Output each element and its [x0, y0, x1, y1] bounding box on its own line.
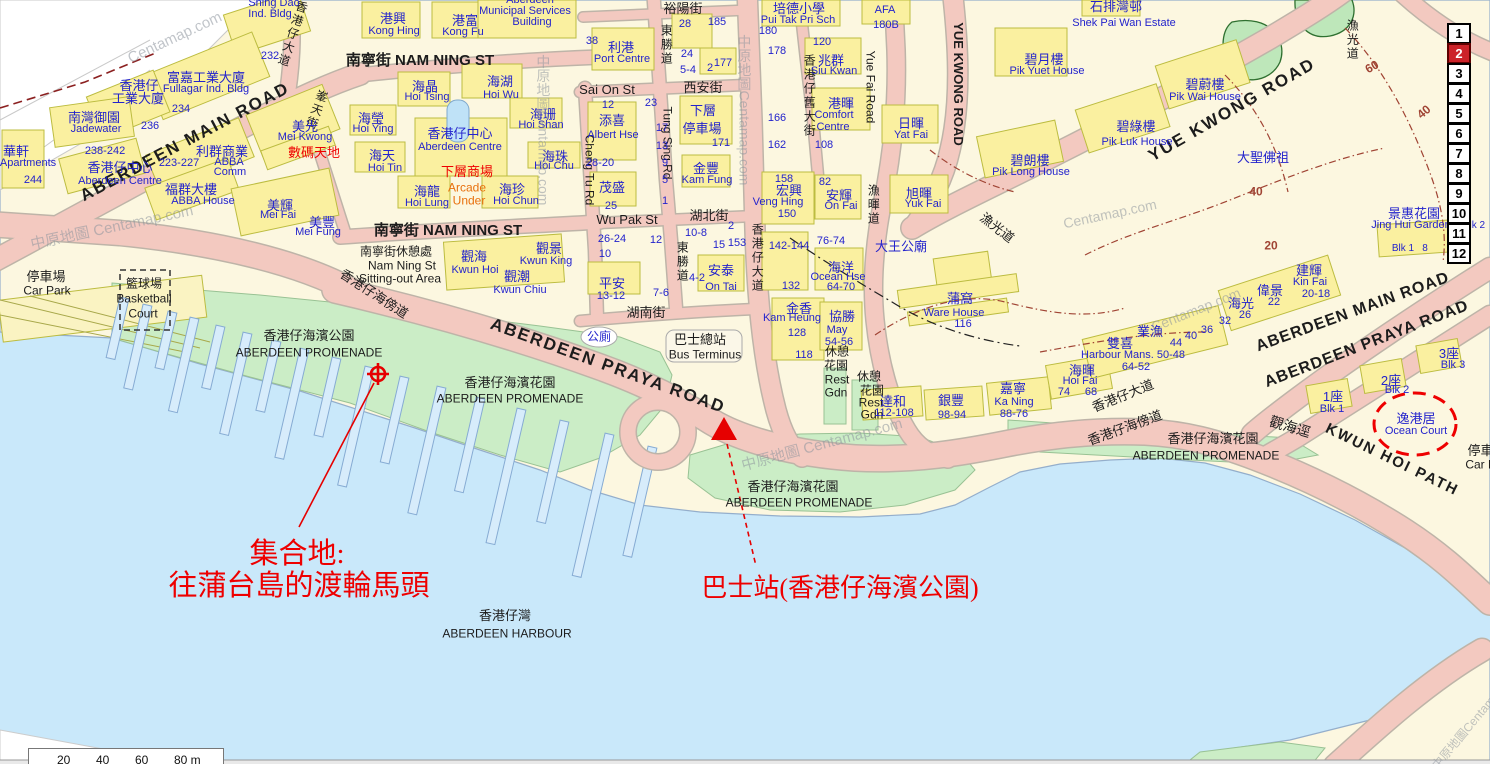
scale-tick: 40 [96, 753, 109, 764]
scale-tick: 20 [57, 753, 70, 764]
page-index-3[interactable]: 3 [1447, 63, 1471, 84]
page-index-2[interactable]: 2 [1447, 43, 1471, 64]
toilet-patch [581, 327, 617, 347]
map-canvas[interactable] [0, 0, 1490, 764]
page-index-5[interactable]: 5 [1447, 103, 1471, 124]
page-index-1[interactable]: 1 [1447, 23, 1471, 44]
page-index-4[interactable]: 4 [1447, 83, 1471, 104]
bus-terminus-patch [666, 330, 742, 362]
scale-tick: 80 m [174, 753, 201, 764]
page-index-9[interactable]: 9 [1447, 183, 1471, 204]
page-index-11[interactable]: 11 [1447, 223, 1471, 244]
page-index-12[interactable]: 12 [1447, 243, 1471, 264]
page-index-8[interactable]: 8 [1447, 163, 1471, 184]
page-index-6[interactable]: 6 [1447, 123, 1471, 144]
centamap-map[interactable]: ABERDEEN MAIN ROADABERDEEN PRAYA ROADABE… [0, 0, 1490, 764]
page-index-10[interactable]: 10 [1447, 203, 1471, 224]
scale-tick: 60 [135, 753, 148, 764]
page-index-7[interactable]: 7 [1447, 143, 1471, 164]
pool [447, 100, 469, 142]
scale-bar: 20406080 m [28, 748, 224, 764]
